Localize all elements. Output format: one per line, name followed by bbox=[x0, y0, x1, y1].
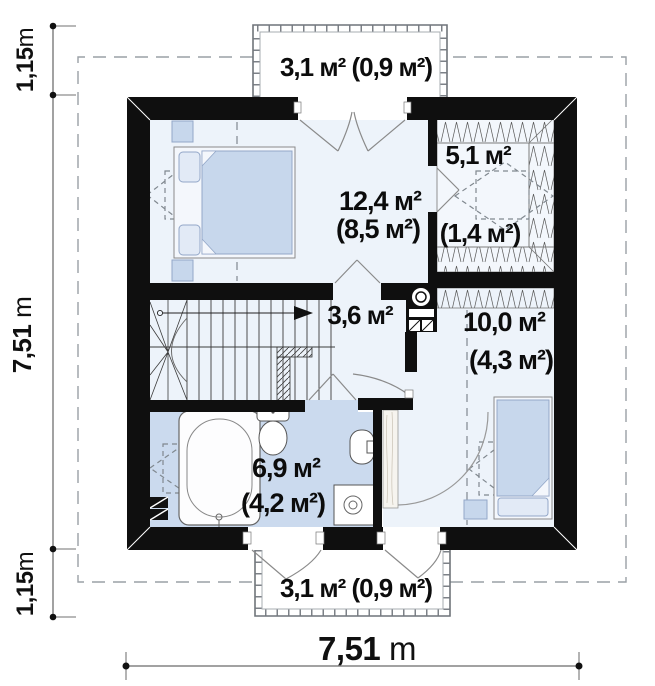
label-bathroom-reduced: (4,2 м²) bbox=[241, 488, 325, 518]
label-balcony-top: 3,1 м² (0,9 м²) bbox=[280, 52, 432, 82]
chimney-flue bbox=[412, 288, 430, 306]
dim-bottom-main: 7,51 m bbox=[318, 630, 416, 667]
doorway-bathroom bbox=[305, 400, 358, 412]
bedroom-2-closet bbox=[437, 288, 554, 308]
pillow bbox=[179, 225, 200, 255]
label-balcony-bottom: 3,1 м² (0,9 м²) bbox=[280, 573, 432, 603]
label-bedroom-1-area: 12,4 м² bbox=[339, 186, 422, 216]
nightstand bbox=[464, 500, 487, 519]
threshold-bottom-right bbox=[383, 527, 440, 550]
threshold-top bbox=[298, 97, 407, 120]
pillow bbox=[179, 152, 200, 182]
floor-plan-canvas: 3,1 м² (0,9 м²) 12,4 м² (8,5 м²) 5,1 м² … bbox=[0, 0, 655, 686]
threshold-bottom-left bbox=[248, 527, 323, 550]
floor-plan-page: 3,1 м² (0,9 м²) 12,4 м² (8,5 м²) 5,1 м² … bbox=[0, 0, 655, 686]
dimension-bottom: 7,51 m bbox=[123, 630, 583, 680]
stair-balustrade-v bbox=[277, 357, 290, 402]
dim-left-top: 1,15m bbox=[12, 28, 39, 92]
bed-blanket bbox=[202, 151, 292, 254]
label-bathroom-area: 6,9 м² bbox=[252, 453, 321, 483]
label-wardrobe-reduced: (1,4 м²) bbox=[440, 218, 521, 248]
toilet bbox=[257, 406, 289, 455]
doorway-bedroom-1 bbox=[333, 283, 381, 300]
label-bedroom-2-area: 10,0 м² bbox=[463, 307, 546, 337]
wardrobe-closet-right bbox=[529, 143, 554, 247]
dim-left-bottom: 1,15m bbox=[12, 552, 39, 616]
label-hall-area: 3,6 м² bbox=[327, 300, 394, 330]
sink bbox=[350, 430, 375, 464]
nightstand bbox=[172, 260, 193, 281]
chimney-shaft bbox=[406, 283, 437, 332]
wardrobe-closet-bottom bbox=[437, 247, 554, 272]
door-leaf bbox=[383, 410, 398, 508]
bed-blanket bbox=[497, 400, 549, 496]
pillow bbox=[498, 498, 548, 516]
stair-balustrade-h bbox=[277, 347, 312, 357]
label-wardrobe-area: 5,1 м² bbox=[445, 140, 512, 170]
dim-left-main: 7,51 m bbox=[7, 297, 37, 374]
label-bedroom-1-reduced: (8,5 м²) bbox=[336, 214, 420, 244]
dimension-left: 1,15m 7,51 m 1,15m bbox=[7, 23, 76, 621]
label-bedroom-2-reduced: (4,3 м²) bbox=[469, 345, 553, 375]
washing-machine bbox=[334, 485, 374, 525]
nightstand bbox=[172, 121, 193, 142]
